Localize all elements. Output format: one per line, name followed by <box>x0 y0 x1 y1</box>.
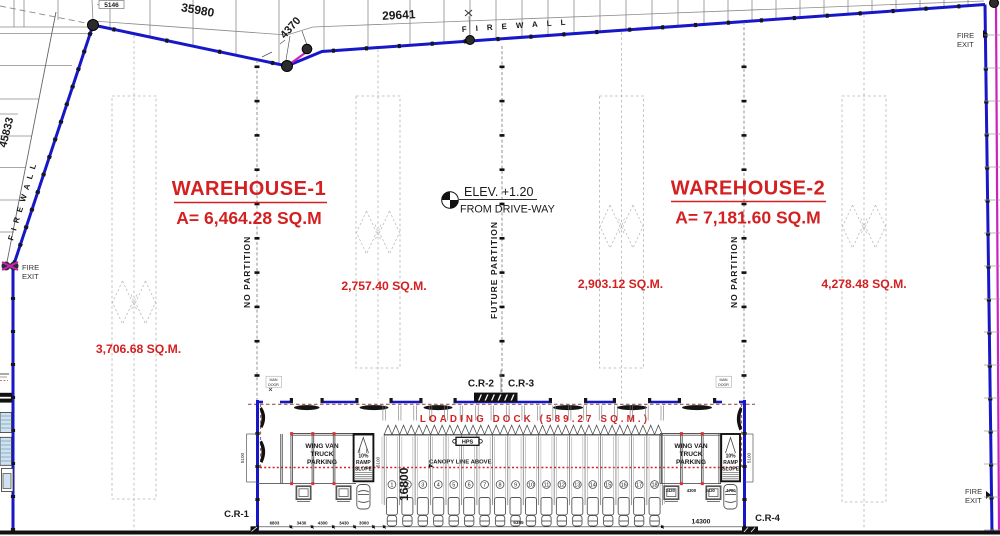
svg-text:3: 3 <box>421 483 424 489</box>
svg-text:FUTURE PARTITION: FUTURE PARTITION <box>489 221 499 319</box>
svg-text:14300: 14300 <box>692 519 711 526</box>
svg-text:16: 16 <box>621 483 627 489</box>
svg-text:FROM DRIVE-WAY: FROM DRIVE-WAY <box>460 204 555 216</box>
svg-text:WAREHOUSE-1: WAREHOUSE-1 <box>172 178 326 200</box>
svg-text:FIRE: FIRE <box>965 487 982 496</box>
svg-text:C.R-4: C.R-4 <box>755 513 781 524</box>
svg-text:29641: 29641 <box>382 7 416 23</box>
svg-text:NO PARTITION: NO PARTITION <box>729 236 739 308</box>
svg-text:16800: 16800 <box>397 467 411 501</box>
svg-text:3430: 3430 <box>666 488 676 493</box>
svg-text:NO PARTITION: NO PARTITION <box>242 236 252 308</box>
svg-text:DOOR: DOOR <box>268 383 279 387</box>
svg-text:8: 8 <box>499 483 502 489</box>
svg-text:MAN: MAN <box>720 378 728 382</box>
svg-text:EXIT: EXIT <box>965 496 982 505</box>
svg-text:CANOPY LINE ABOVE: CANOPY LINE ABOVE <box>429 460 492 466</box>
svg-text:5: 5 <box>452 483 455 489</box>
svg-text:3430: 3430 <box>339 520 349 525</box>
svg-text:6: 6 <box>468 483 471 489</box>
svg-text:14: 14 <box>590 483 596 489</box>
svg-text:18: 18 <box>652 483 658 489</box>
svg-text:WAREHOUSE-2: WAREHOUSE-2 <box>671 178 825 200</box>
svg-text:WING VAN: WING VAN <box>674 443 707 450</box>
svg-text:A= 6,464.28 SQ.M: A= 6,464.28 SQ.M <box>176 208 321 228</box>
svg-text:SLOPE: SLOPE <box>722 467 740 473</box>
svg-text:1: 1 <box>390 483 393 489</box>
svg-text:10%: 10% <box>726 454 737 460</box>
svg-text:4,278.48 SQ.M.: 4,278.48 SQ.M. <box>821 277 906 291</box>
svg-text:4: 4 <box>437 483 440 489</box>
svg-text:3430: 3430 <box>297 520 307 525</box>
svg-text:4300: 4300 <box>318 520 328 525</box>
svg-text:2,903.12 SQ.M.: 2,903.12 SQ.M. <box>578 277 663 291</box>
svg-text:RAMP: RAMP <box>356 460 371 466</box>
svg-text:SLOPE: SLOPE <box>355 467 373 473</box>
svg-text:3,706.68 SQ.M.: 3,706.68 SQ.M. <box>96 342 181 356</box>
svg-text:TRUCK: TRUCK <box>310 451 333 458</box>
svg-text:C.R-3: C.R-3 <box>508 379 535 390</box>
svg-text:FIRE: FIRE <box>957 31 974 40</box>
svg-text:MAN: MAN <box>270 378 278 382</box>
svg-text:5146: 5146 <box>104 2 119 9</box>
svg-text:5100: 5100 <box>240 452 245 463</box>
svg-text:PARKING: PARKING <box>676 459 706 466</box>
svg-text:TRUCK: TRUCK <box>679 451 702 458</box>
svg-text:13: 13 <box>574 483 580 489</box>
svg-text:RAMP: RAMP <box>723 460 738 466</box>
svg-text:DOOR: DOOR <box>718 383 729 387</box>
svg-text:WING VAN: WING VAN <box>305 443 338 450</box>
svg-text:2,757.40 SQ.M.: 2,757.40 SQ.M. <box>341 279 426 293</box>
svg-text:12: 12 <box>559 483 565 489</box>
svg-text:10: 10 <box>528 483 534 489</box>
svg-text:15: 15 <box>605 483 611 489</box>
svg-text:5100: 5100 <box>747 452 752 463</box>
svg-text:C.R-2: C.R-2 <box>468 379 495 390</box>
svg-text:EXIT: EXIT <box>957 40 974 49</box>
svg-text:ELEV. +1.20: ELEV. +1.20 <box>464 185 533 199</box>
svg-text:6803: 6803 <box>270 520 280 525</box>
svg-text:9: 9 <box>514 483 517 489</box>
svg-text:PARKING: PARKING <box>307 459 337 466</box>
svg-text:10%: 10% <box>358 454 369 460</box>
svg-text:3000: 3000 <box>359 520 369 525</box>
svg-text:7: 7 <box>483 483 486 489</box>
svg-text:LOADING DOCK (589.27 SQ.M.): LOADING DOCK (589.27 SQ.M.) <box>420 414 650 425</box>
svg-text:6385: 6385 <box>513 520 524 525</box>
svg-text:HPS: HPS <box>462 440 474 446</box>
svg-text:C.R-1: C.R-1 <box>224 509 250 520</box>
svg-text:17: 17 <box>636 483 642 489</box>
svg-text:A= 7,181.60 SQ.M: A= 7,181.60 SQ.M <box>675 208 820 228</box>
svg-text:5100: 5100 <box>376 456 381 467</box>
svg-text:11: 11 <box>544 483 550 489</box>
svg-text:4300: 4300 <box>687 488 697 493</box>
svg-text:EXIT: EXIT <box>22 272 39 281</box>
svg-text:3430: 3430 <box>706 488 716 493</box>
svg-text:FIRE: FIRE <box>22 263 39 272</box>
